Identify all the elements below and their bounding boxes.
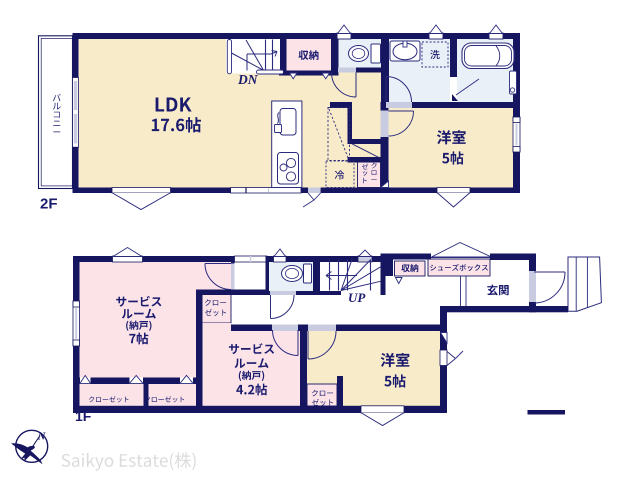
svg-text:2F: 2F — [40, 196, 58, 213]
svg-text:UP: UP — [348, 290, 366, 305]
svg-text:N: N — [37, 432, 46, 443]
svg-text:DN: DN — [237, 72, 259, 87]
svg-text:1F: 1F — [75, 408, 92, 424]
